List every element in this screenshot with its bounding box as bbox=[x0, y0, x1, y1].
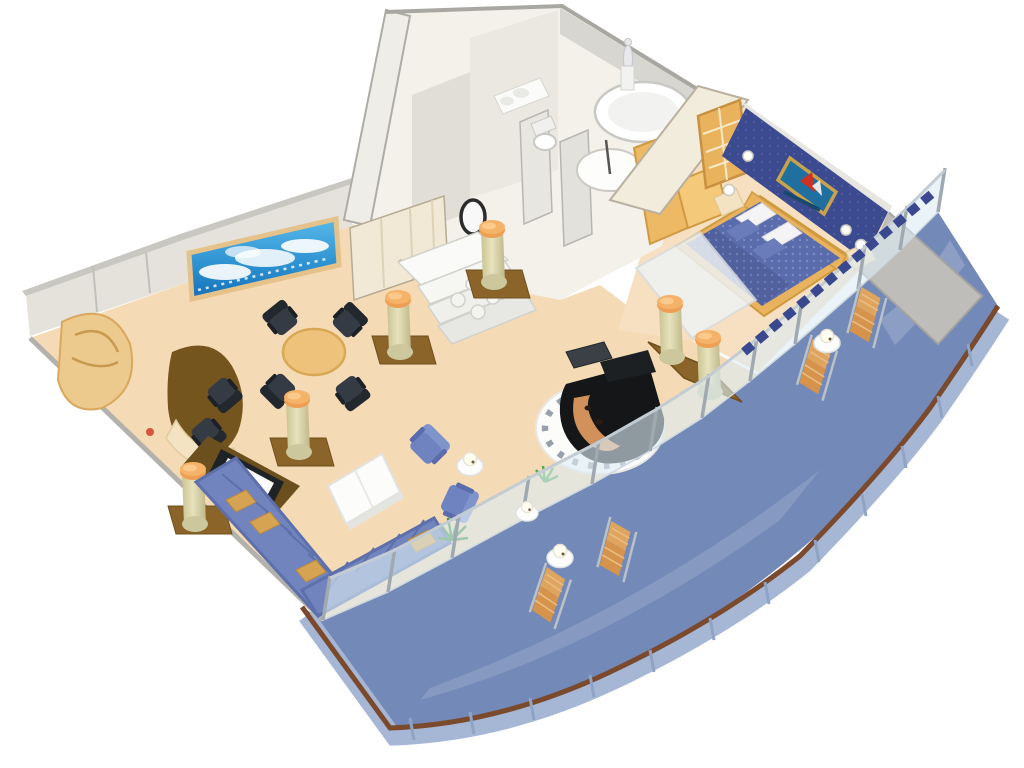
piano-detail bbox=[595, 419, 603, 425]
piano-detail bbox=[585, 406, 592, 411]
corner-bar-cabinet bbox=[58, 314, 132, 410]
sconce-lamp bbox=[841, 225, 851, 235]
door-slab-2 bbox=[560, 130, 592, 246]
sconce-lamp bbox=[743, 151, 753, 161]
column bbox=[284, 390, 312, 460]
column bbox=[180, 462, 208, 532]
dining-table bbox=[283, 329, 345, 375]
column bbox=[479, 220, 507, 290]
column bbox=[657, 295, 685, 365]
desk-decor bbox=[146, 428, 154, 436]
column bbox=[385, 290, 413, 360]
suite-floorplan-illustration bbox=[0, 0, 1024, 768]
